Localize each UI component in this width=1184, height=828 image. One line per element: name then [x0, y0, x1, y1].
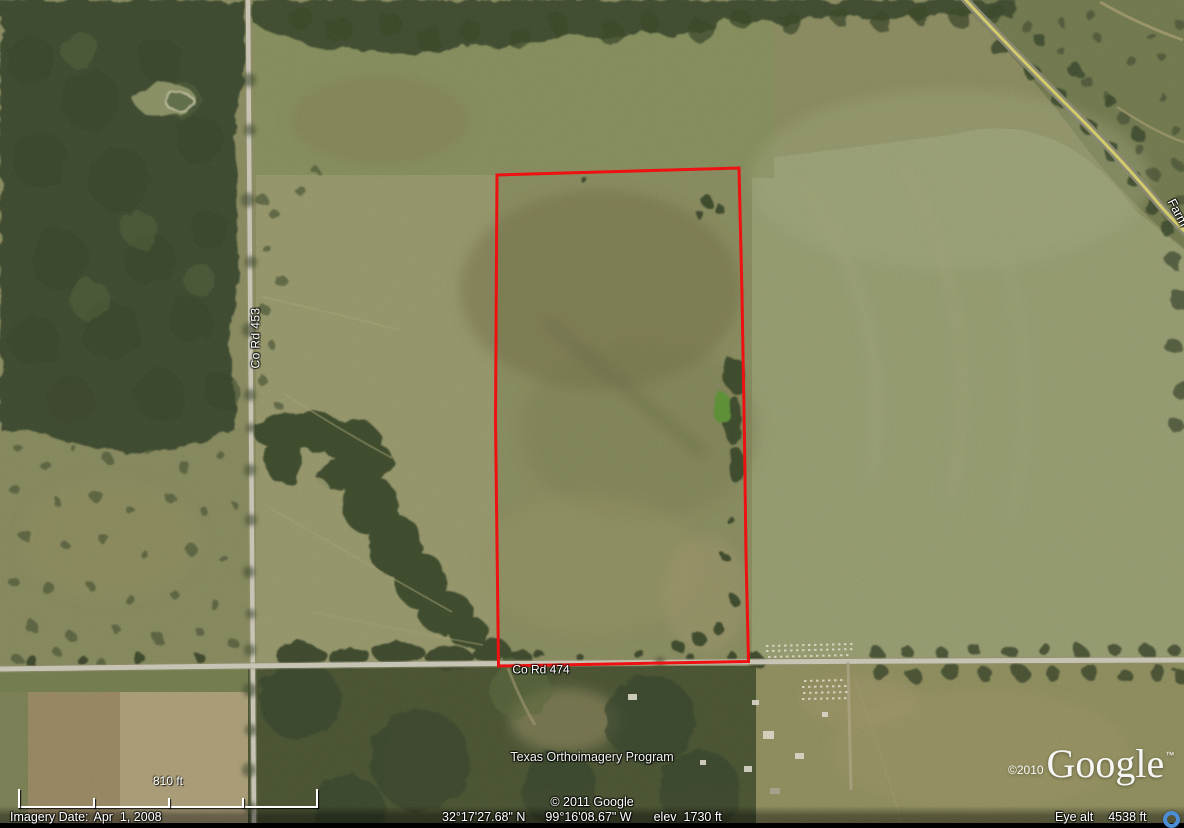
imagery-date: Imagery Date: Apr 1, 2008 [10, 811, 162, 825]
elevation-label: elev [654, 811, 677, 825]
trademark-symbol: ™ [1165, 750, 1174, 784]
scale-bar-tick [168, 798, 170, 808]
elevation-value: 1730 ft [684, 811, 722, 825]
pointer-coordinates: 32°17'27.68" N 99°16'08.67" W elev 1730 … [442, 811, 722, 825]
streaming-indicator-icon [1163, 811, 1180, 828]
grain-light [0, 0, 1184, 828]
watermark-copyright: ©2010 [1008, 763, 1044, 784]
scale-bar-tick [242, 798, 244, 808]
map-copyright: © 2011 Google [550, 796, 633, 810]
scale-bar-tick [316, 789, 318, 808]
road-label-co-rd-453: Co Rd 453 [249, 308, 262, 369]
longitude-value: 99°16'08.67" W [545, 811, 631, 825]
eye-altitude-label: Eye alt [1055, 811, 1093, 825]
imagery-date-label: Imagery Date: [10, 811, 89, 825]
latitude-value: 32°17'27.68" N [442, 811, 525, 825]
imagery-date-value: Apr 1, 2008 [94, 811, 162, 825]
scale-bar-label: 810 ft [18, 774, 318, 788]
google-logo: Google [1047, 744, 1165, 784]
scale-bar: 810 ft [18, 774, 318, 808]
eye-altitude: Eye alt 4538 ft [1055, 811, 1146, 825]
satellite-imagery [0, 0, 1184, 828]
google-watermark: ©2010 Google ™ [1008, 744, 1174, 784]
road-label-co-rd-474: Co Rd 474 [512, 663, 569, 676]
map-viewport[interactable]: Co Rd 453 Co Rd 474 Farm Texas Orthoimag… [0, 0, 1184, 828]
scale-bar-tick [18, 789, 20, 808]
imagery-overlay-credit: Texas Orthoimagery Program [510, 751, 673, 765]
scale-bar-tick [93, 798, 95, 808]
eye-altitude-value: 4538 ft [1108, 811, 1146, 825]
scale-bar-ruler [18, 789, 318, 808]
